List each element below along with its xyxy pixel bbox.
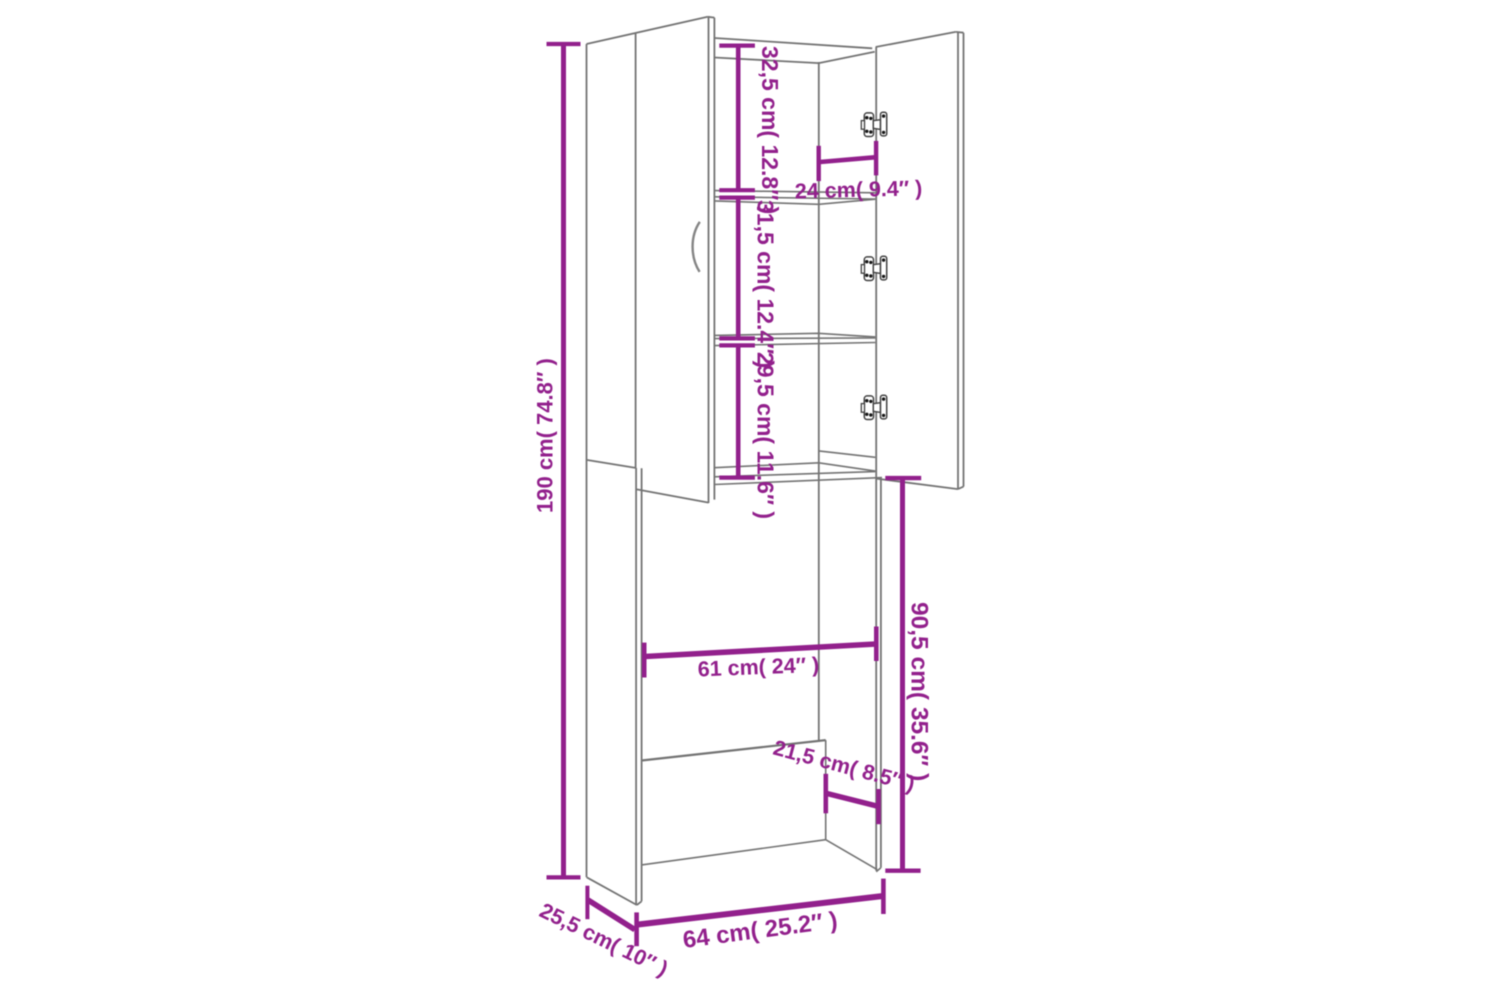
- svg-text:190 cm( 74.8″ ): 190 cm( 74.8″ ): [533, 358, 558, 513]
- svg-text:29,5 cm( 11.6″ ): 29,5 cm( 11.6″ ): [753, 352, 779, 519]
- svg-text:90,5 cm( 35.6″ ): 90,5 cm( 35.6″ ): [906, 602, 933, 781]
- svg-text:24 cm( 9.4″ ): 24 cm( 9.4″ ): [795, 176, 923, 203]
- svg-text:21,5 cm( 8.5″ ): 21,5 cm( 8.5″ ): [771, 736, 918, 797]
- svg-text:31,5 cm( 12.4″ ): 31,5 cm( 12.4″ ): [753, 200, 779, 368]
- svg-text:61 cm( 24″ ): 61 cm( 24″ ): [697, 653, 819, 682]
- svg-text:32,5 cm( 12.8″ ): 32,5 cm( 12.8″ ): [757, 46, 783, 214]
